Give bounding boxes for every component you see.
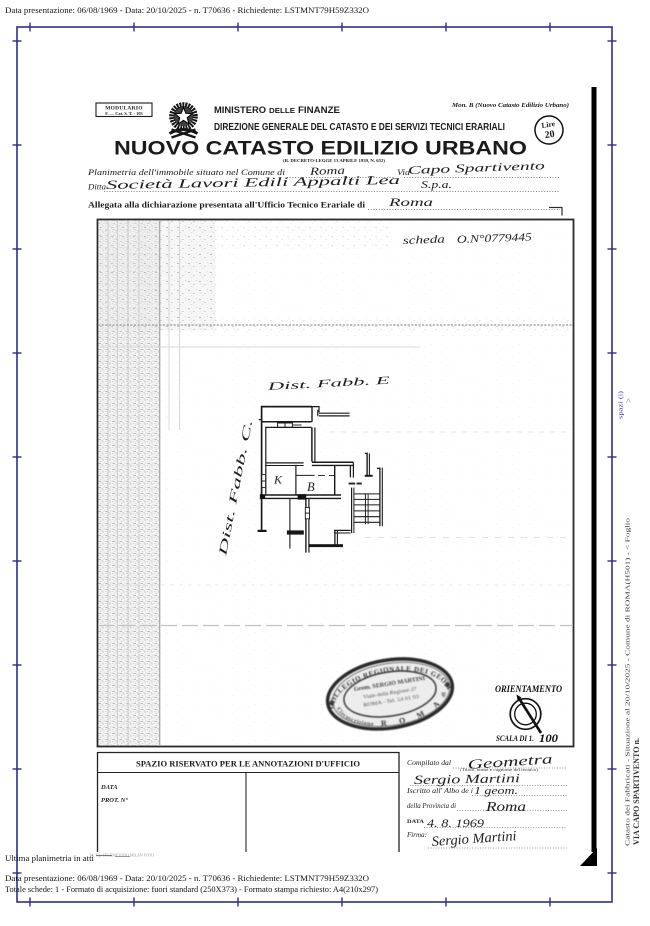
- svg-text:spazi (i): spazi (i): [618, 391, 625, 419]
- svg-text:Totale schede: 1 - Formato di: Totale schede: 1 - Formato di acquisizio…: [5, 885, 378, 894]
- svg-text:DELLE: DELLE: [269, 108, 295, 115]
- svg-text:DATA: DATA: [407, 819, 424, 825]
- svg-text:4. 8. 1969: 4. 8. 1969: [427, 818, 484, 830]
- svg-text:Sergio Martini: Sergio Martini: [431, 829, 517, 850]
- svg-text:K: K: [273, 473, 283, 487]
- svg-text:Lire: Lire: [541, 119, 556, 130]
- svg-text:Data presentazione: 06/08/1969: Data presentazione: 06/08/1969 - Data: 2…: [5, 6, 369, 15]
- svg-text:Compilato dal: Compilato dal: [407, 758, 451, 767]
- svg-text:DATA: DATA: [100, 784, 118, 791]
- svg-text:NUOVO CATASTO EDILIZIO URBANO: NUOVO CATASTO EDILIZIO URBANO: [114, 139, 527, 160]
- svg-text:Roma: Roma: [485, 799, 527, 814]
- svg-text:Catasto dei Fabbricati - Situa: Catasto dei Fabbricati - Situazione al 2…: [625, 517, 632, 846]
- svg-text:Sergio Martini: Sergio Martini: [414, 771, 521, 787]
- svg-text:MINISTERO: MINISTERO: [214, 105, 266, 115]
- svg-text:F. — Cat. S. T. - 103: F. — Cat. S. T. - 103: [105, 111, 143, 116]
- svg-text:ORIENTAMENTO: ORIENTAMENTO: [495, 685, 562, 695]
- svg-text:PROT. N°: PROT. N°: [101, 797, 128, 804]
- svg-text:Data presentazione: 06/08/1969: Data presentazione: 06/08/1969 - Data: 2…: [5, 874, 369, 883]
- svg-text:Allegata alla dichiarazione pr: Allegata alla dichiarazione presentata a…: [88, 201, 366, 210]
- svg-text:Ultima planimetria in atti: Ultima planimetria in atti: [5, 854, 95, 863]
- svg-text:DIREZIONE GENERALE DEL CATASTO: DIREZIONE GENERALE DEL CATASTO E DEI SER…: [214, 122, 505, 133]
- svg-text:della Provincia di: della Provincia di: [407, 801, 456, 810]
- svg-text:Ditta: Ditta: [87, 182, 106, 192]
- svg-text:VIA CAPO SPARTIVENTO n.: VIA CAPO SPARTIVENTO n.: [632, 738, 641, 845]
- svg-text:Roma: Roma: [387, 197, 433, 209]
- svg-text:SPAZIO RISERVATO PER LE ANNOTA: SPAZIO RISERVATO PER LE ANNOTAZIONI D'UF…: [136, 760, 360, 769]
- svg-text:>: >: [624, 398, 634, 403]
- svg-text:B: B: [307, 480, 315, 494]
- svg-text:Iscritto all' Albo de i: Iscritto all' Albo de i: [406, 786, 473, 795]
- svg-text:1 geom.: 1 geom.: [474, 786, 518, 797]
- svg-text:Capo Spartivento: Capo Spartivento: [408, 160, 546, 177]
- svg-text:100: 100: [539, 731, 558, 745]
- svg-text:scheda: scheda: [403, 234, 446, 247]
- svg-text:S.p.a.: S.p.a.: [421, 180, 452, 191]
- svg-text:Firma:: Firma:: [406, 831, 427, 839]
- svg-text:(R. DECRETO-LEGGE 13 APRILE 19: (R. DECRETO-LEGGE 13 APRILE 1939, N. 652…: [283, 158, 385, 163]
- svg-text:FINANZE: FINANZE: [298, 105, 340, 115]
- svg-text:Geometra: Geometra: [467, 751, 553, 772]
- svg-text:Mon. B (Nuovo Catasto Edilizio: Mon. B (Nuovo Catasto Edilizio Urbano): [451, 102, 569, 109]
- svg-text:SCALA DI 1.: SCALA DI 1.: [496, 734, 534, 743]
- svg-text:20: 20: [544, 129, 555, 141]
